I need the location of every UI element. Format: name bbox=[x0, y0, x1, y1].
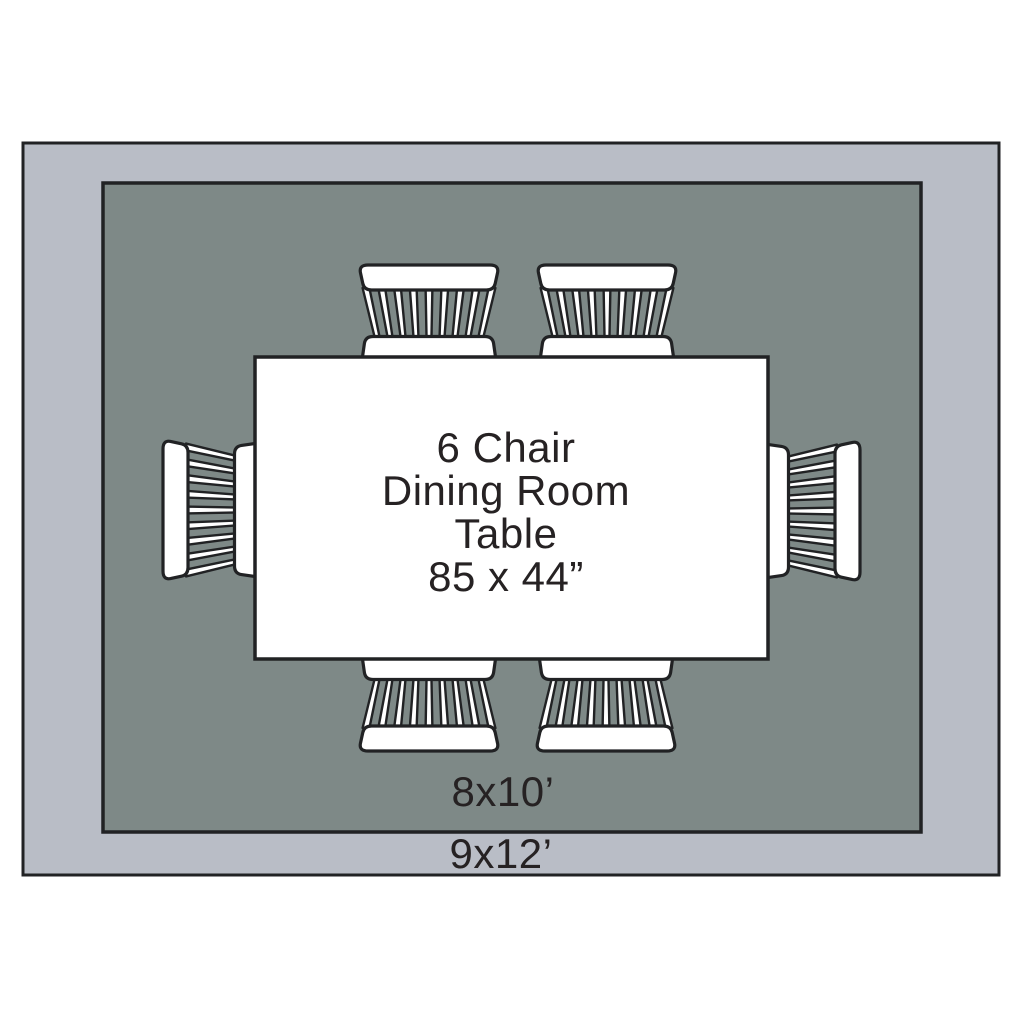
outer-rug-size-label: 9x12’ bbox=[450, 830, 553, 877]
dining-room-rug-diagram: 6 Chair Dining Room Table 85 x 44” 8x10’… bbox=[0, 0, 1024, 1024]
table-label-line-2: Dining Room bbox=[382, 467, 630, 514]
table-label-line-3: Table bbox=[455, 510, 558, 557]
rug-size-diagram-page: 6 Chair Dining Room Table 85 x 44” 8x10’… bbox=[0, 0, 1024, 1024]
table-label-line-1: 6 Chair bbox=[437, 424, 576, 471]
inner-rug-size-label: 8x10’ bbox=[452, 768, 555, 815]
table-label-line-4: 85 x 44” bbox=[428, 553, 584, 600]
